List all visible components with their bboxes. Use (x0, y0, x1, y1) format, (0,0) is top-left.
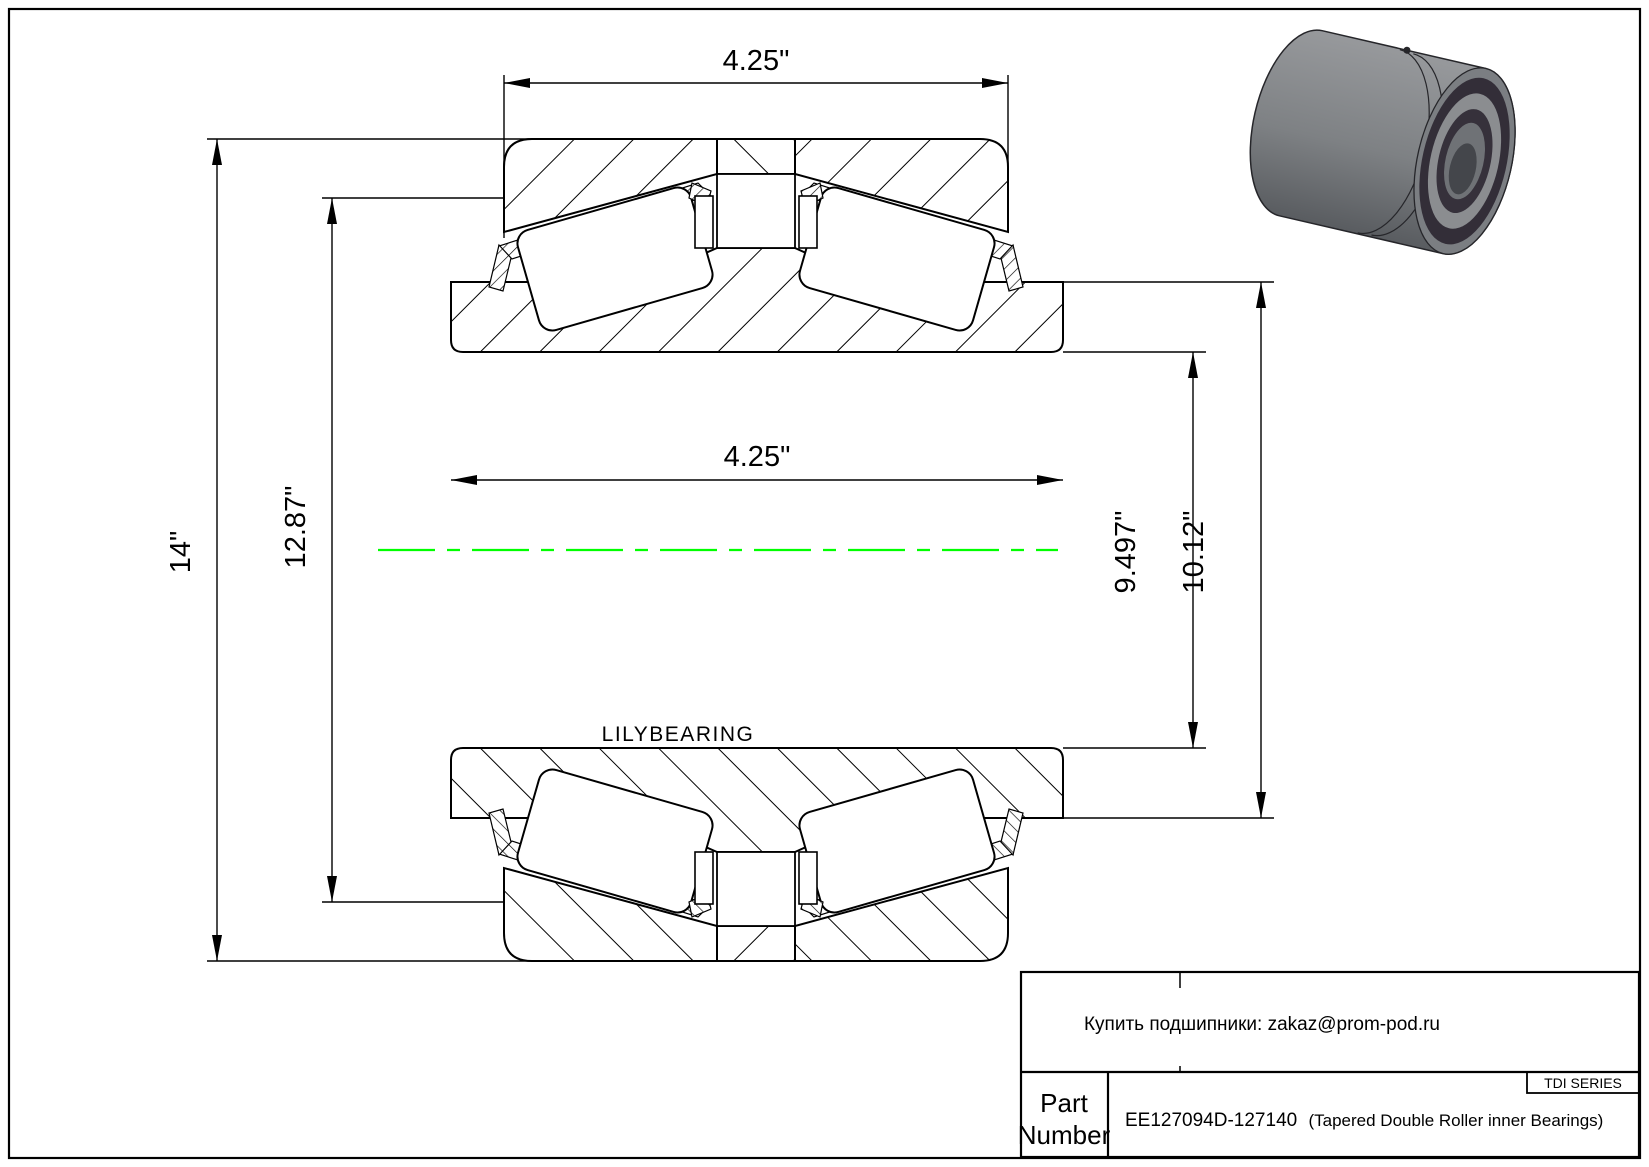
series-label: TDI SERIES (1544, 1075, 1622, 1091)
dim-bore-width: 4.25" (724, 441, 791, 473)
cage-guide (695, 196, 713, 248)
part-number: EE127094D-127140 (1125, 1110, 1297, 1131)
drawing-sheet: LILYBEARING 4.25" (0, 0, 1649, 1167)
part-description: (Tapered Double Roller inner Bearings) (1308, 1111, 1603, 1130)
cage-guide (799, 196, 817, 248)
contact-text: Купить подшипники: zakaz@prom-pod.ru (1084, 1014, 1440, 1035)
part-label-line1: Part (1040, 1088, 1088, 1118)
technical-drawing-canvas: LILYBEARING 4.25" (0, 0, 1649, 1167)
dim-cup-diameter: 12.87" (280, 486, 312, 569)
cup-spacer (717, 139, 795, 174)
spacer-gap (717, 174, 795, 248)
part-label-line2: Number (1018, 1120, 1111, 1150)
dim-outer-diameter: 14" (165, 531, 197, 574)
bearing-3d-image (1234, 17, 1533, 264)
dim-rib-diameter: 9.497" (1110, 511, 1142, 594)
dim-backface-diameter: 10.12" (1178, 511, 1210, 594)
part-number-text: EE127094D-127140 (Tapered Double Roller … (1125, 1110, 1603, 1131)
watermark-text: LILYBEARING (602, 723, 755, 746)
bearing-cross-section-half (451, 139, 1063, 352)
bearing-cross-section-mirror (451, 748, 1063, 961)
dim-cup-width: 4.25" (723, 45, 790, 77)
